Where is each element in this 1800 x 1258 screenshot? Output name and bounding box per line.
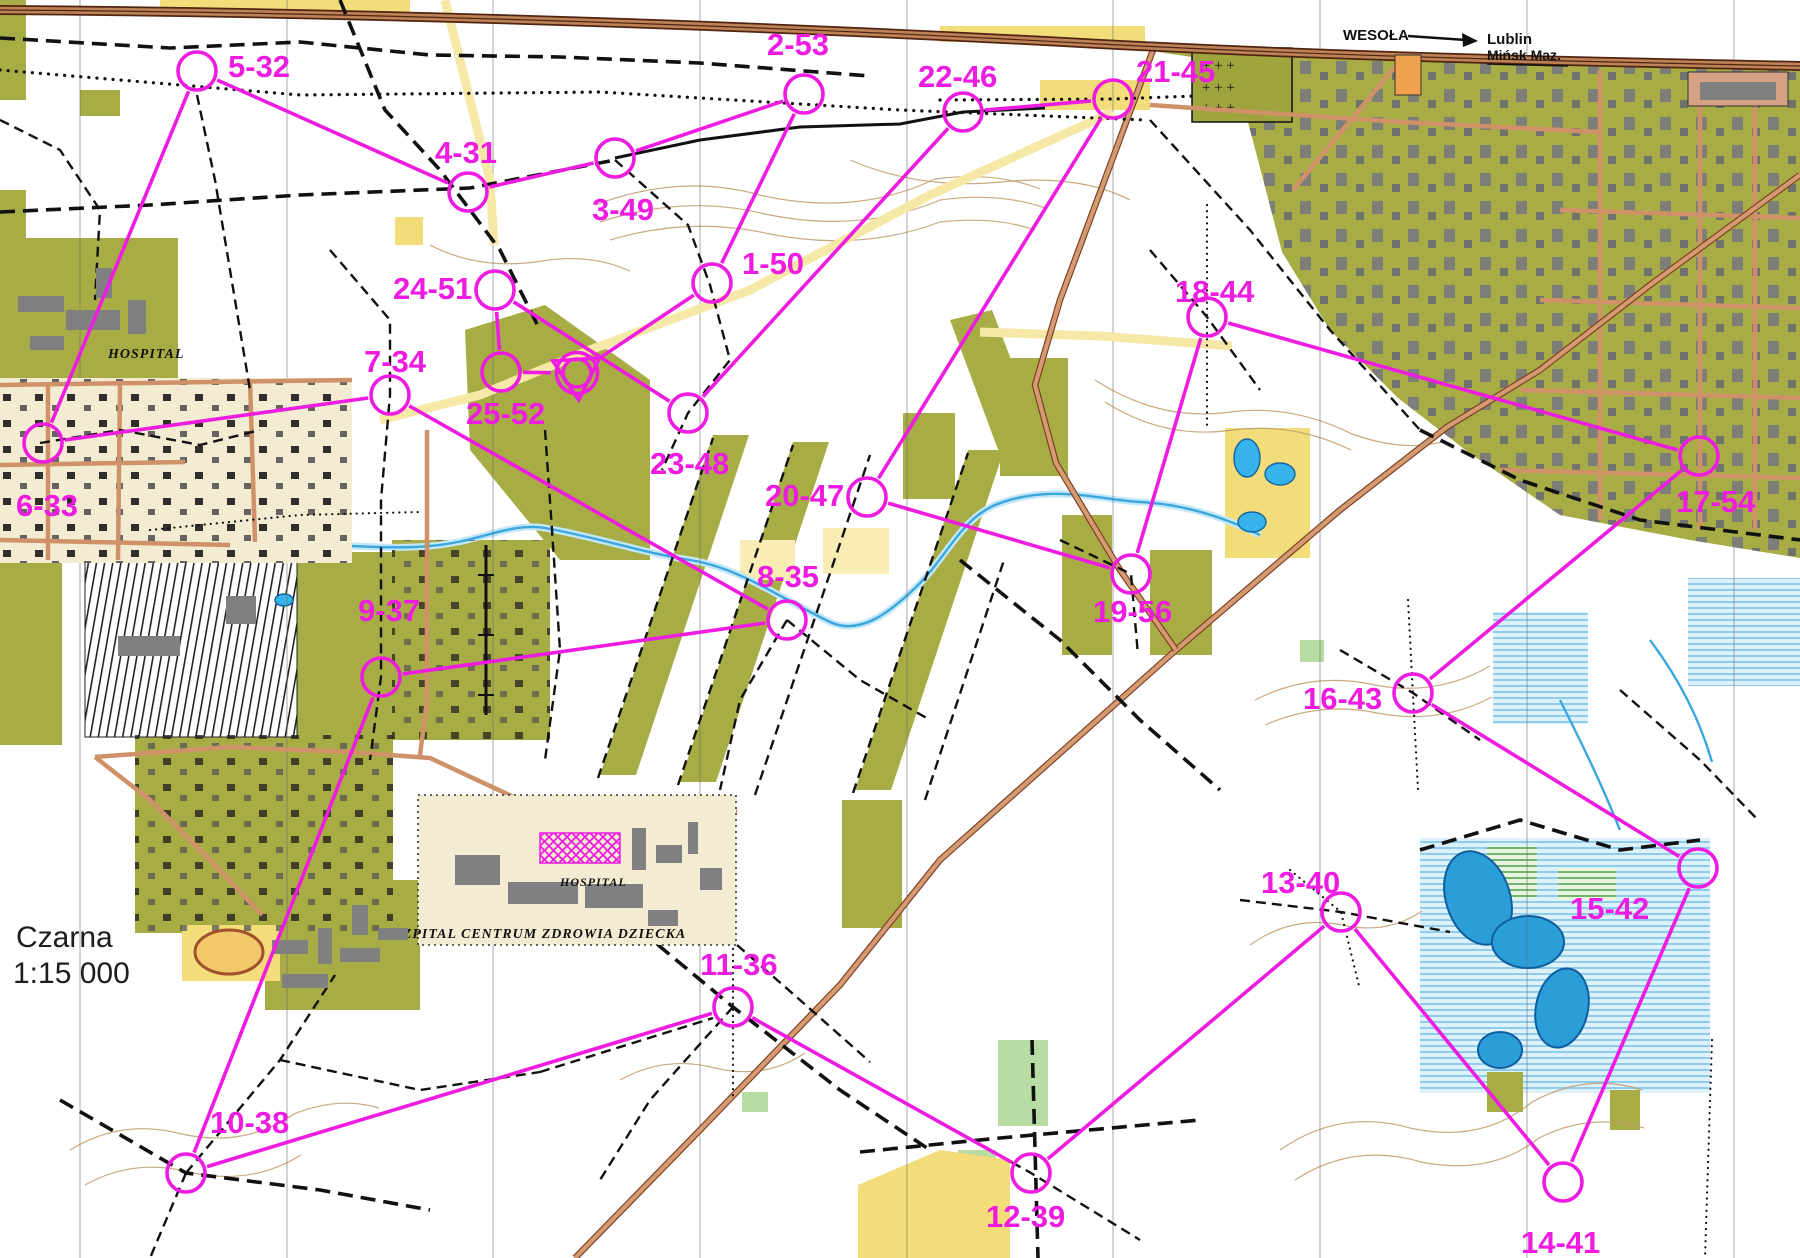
control-label-7-34: 7-34 [364,344,427,379]
control-label-18-44: 18-44 [1175,274,1255,309]
signpost-destination-1: Lublin [1487,31,1532,48]
control-label-12-39: 12-39 [986,1199,1065,1234]
hospital-west-label: HOSPITAL [107,347,184,362]
control-label-25-52: 25-52 [466,396,545,431]
map-background: + + + + + + + + + [0,0,1800,1258]
control-label-13-40: 13-40 [1261,865,1340,900]
control-label-15-42: 15-42 [1570,891,1649,926]
control-label-5-32: 5-32 [228,49,290,84]
orienteering-map: + + + + + + + + + [0,0,1800,1258]
signpost-town: WESOŁA [1343,27,1409,44]
control-label-14-41: 14-41 [1521,1225,1600,1258]
map-scale: 1:15 000 [13,957,130,990]
control-label-22-46: 22-46 [918,59,997,94]
hospital-south-label: HOSPITAL [559,875,627,889]
control-label-4-31: 4-31 [435,135,497,170]
control-label-24-51: 24-51 [393,271,472,306]
control-label-17-54: 17-54 [1676,484,1756,519]
control-label-20-47: 20-47 [765,478,844,513]
control-label-21-45: 21-45 [1136,54,1215,89]
control-label-11-36: 11-36 [700,947,778,982]
stadium [195,930,263,974]
marsh-area [1688,578,1800,686]
map-canvas: + + + + + + + + + [0,0,1800,1258]
residential-southwest-buildings [135,735,393,933]
control-label-19-56: 19-56 [1093,594,1172,629]
signpost-destination-2: Mińsk Maz. [1487,47,1561,63]
control-label-8-35: 8-35 [757,559,819,594]
control-label-16-43: 16-43 [1303,681,1382,716]
residential-strips-buildings [392,540,550,740]
marsh-area [1493,612,1588,724]
hospital-south: HOSPITAL SZPITAL CENTRUM ZDROWIA DZIECKA [394,795,736,945]
map-title: Czarna [16,921,113,954]
control-label-3-49: 3-49 [592,192,654,227]
cleared-area [85,555,297,737]
control-label-6-33: 6-33 [16,488,78,523]
control-label-9-37: 9-37 [358,593,420,628]
control-label-2-53: 2-53 [767,27,829,62]
control-label-10-38: 10-38 [210,1105,289,1140]
hospital-south-name: SZPITAL CENTRUM ZDROWIA DZIECKA [394,927,686,942]
control-label-1-50: 1-50 [742,246,804,281]
control-label-23-48: 23-48 [650,446,729,481]
out-of-bounds-area [540,833,620,863]
